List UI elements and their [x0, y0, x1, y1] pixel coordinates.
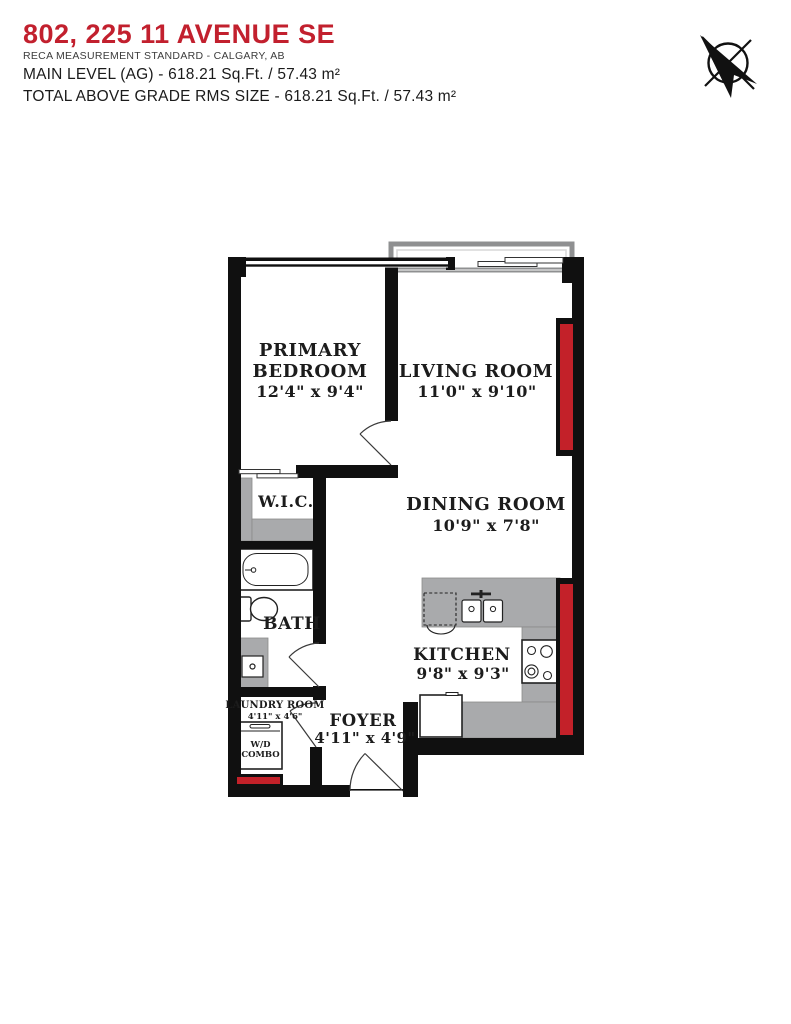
north-arrow-icon [700, 35, 757, 98]
svg-text:4'11" x 4'6": 4'11" x 4'6" [248, 712, 303, 722]
fridge [420, 693, 462, 738]
svg-text:LAUNDRY ROOM: LAUNDRY ROOM [225, 700, 324, 711]
stove [522, 640, 557, 683]
living-room-window-marker [560, 324, 573, 450]
svg-text:12'4" x 9'4": 12'4" x 9'4" [256, 382, 364, 401]
label-primary-bedroom: PRIMARY BEDROOM 12'4" x 9'4" [253, 340, 368, 401]
svg-text:9'8" x 9'3": 9'8" x 9'3" [416, 664, 509, 683]
bedroom-window [246, 258, 448, 268]
svg-text:BEDROOM: BEDROOM [253, 361, 368, 382]
svg-text:KITCHEN: KITCHEN [413, 645, 511, 665]
bathtub [238, 549, 313, 590]
laundry-window-marker [237, 777, 280, 784]
vanity-sink [242, 656, 263, 677]
svg-text:PRIMARY: PRIMARY [259, 340, 362, 361]
label-bath: BATH [263, 614, 321, 634]
svg-text:10'9" x 7'8": 10'9" x 7'8" [432, 516, 540, 535]
svg-text:4'11" x 4'9": 4'11" x 4'9" [314, 729, 415, 747]
balcony-sliding-door [478, 258, 563, 267]
svg-text:11'0" x 9'10": 11'0" x 9'10" [417, 382, 536, 401]
svg-text:BATH: BATH [263, 614, 321, 634]
svg-text:COMBO: COMBO [241, 750, 280, 760]
label-kitchen: KITCHEN 9'8" x 9'3" [413, 645, 511, 683]
floorplan-drawing: PRIMARY BEDROOM 12'4" x 9'4" LIVING ROOM… [0, 0, 791, 1024]
kitchen-window-marker [560, 584, 573, 735]
svg-text:W/D: W/D [249, 740, 271, 750]
svg-text:DINING ROOM: DINING ROOM [406, 494, 566, 515]
bath-door [289, 643, 319, 687]
label-foyer: FOYER 4'11" x 4'9" [314, 711, 415, 747]
svg-text:W.I.C.: W.I.C. [257, 492, 314, 511]
label-living-room: LIVING ROOM 11'0" x 9'10" [399, 361, 553, 401]
wic-sliding-door [239, 470, 298, 478]
svg-text:LIVING ROOM: LIVING ROOM [399, 361, 553, 382]
label-wic: W.I.C. [257, 492, 314, 511]
svg-text:FOYER: FOYER [329, 711, 396, 730]
bedroom-door [360, 421, 391, 465]
entry-door [350, 754, 403, 792]
label-dining-room: DINING ROOM 10'9" x 7'8" [406, 494, 566, 535]
floorplan-page: 802, 225 11 AVENUE SE RECA MEASUREMENT S… [0, 0, 791, 1024]
